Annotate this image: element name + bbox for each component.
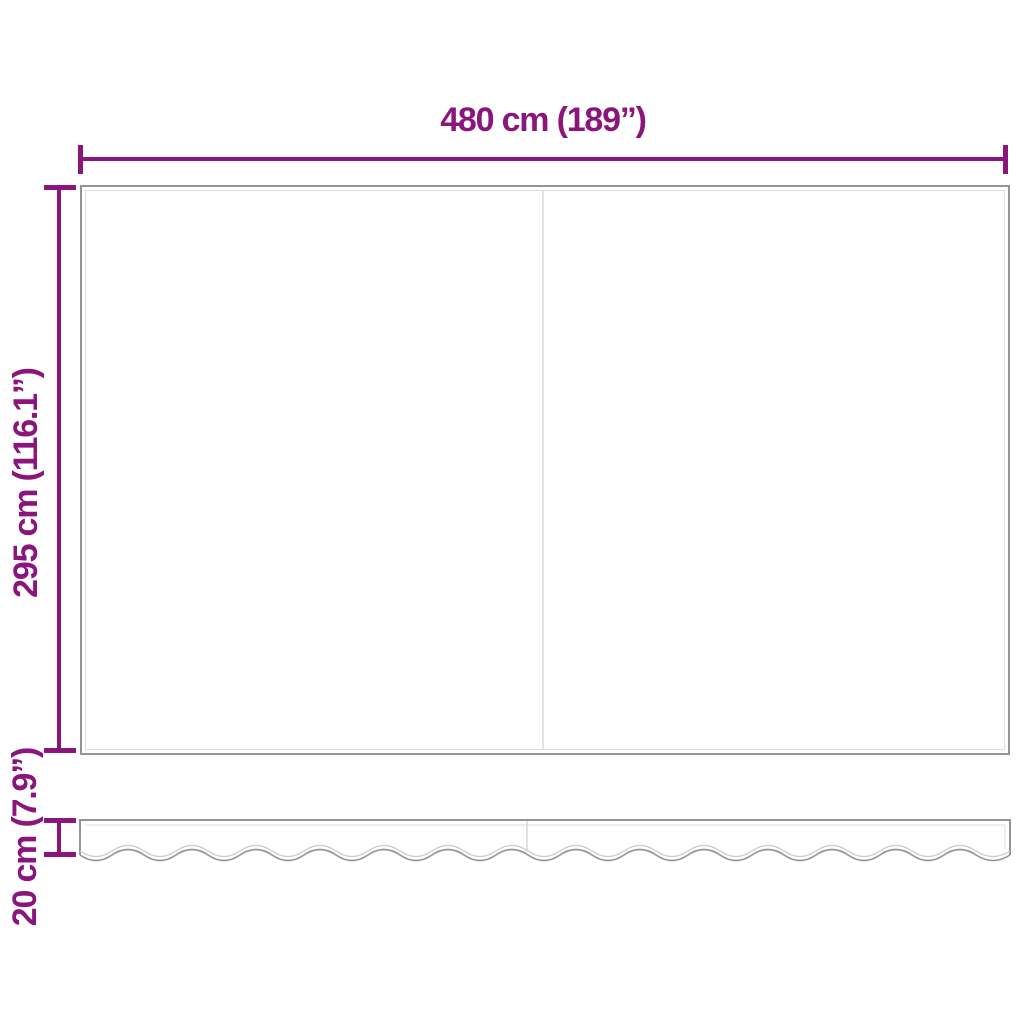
valance-dimension-label: 20 cm (7.9”) — [5, 737, 45, 937]
product-dimension-diagram: 480 cm (189”) 295 cm (116.1”) 20 cm (7.9… — [0, 0, 1024, 1024]
height-dimension-label: 295 cm (116.1”) — [6, 353, 46, 613]
fabric-panel — [80, 185, 1010, 755]
height-dimension-line — [57, 187, 61, 751]
fabric-panel-center-seam — [542, 191, 544, 749]
width-dimension-line — [80, 157, 1006, 161]
valance-dimension-line — [57, 820, 61, 855]
valance-inner-top-line — [85, 825, 1005, 850]
width-dimension-label: 480 cm (189”) — [393, 100, 693, 140]
fabric-panel-inner-outline — [85, 190, 1005, 750]
valance-wave-inner — [80, 846, 1010, 857]
valance-strip — [78, 816, 1014, 878]
